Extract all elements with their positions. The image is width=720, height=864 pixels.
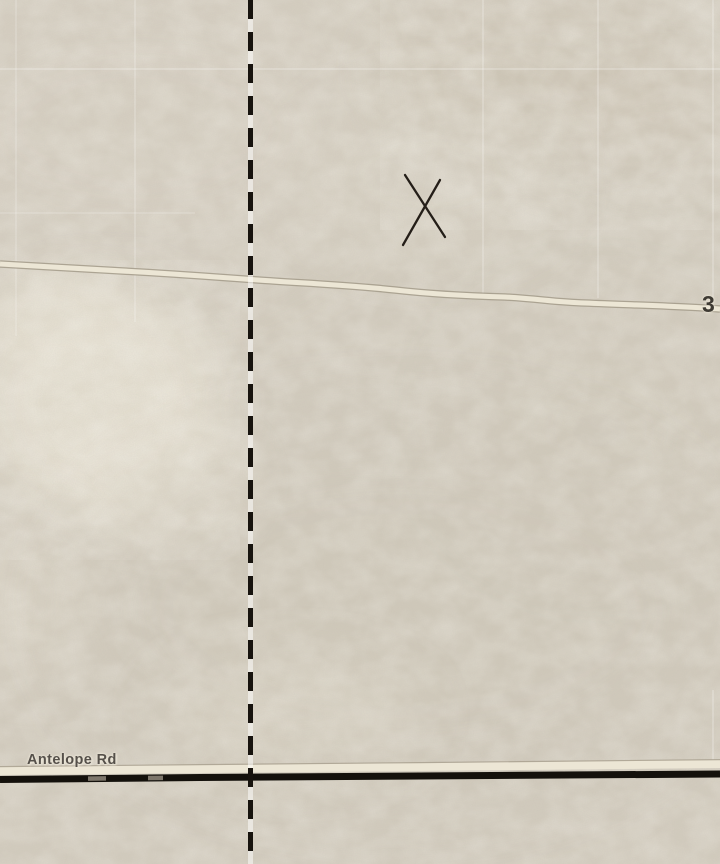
x-mark[interactable] [403,175,445,245]
antelope-road [0,774,720,780]
overlay-layer [0,0,720,864]
route-number-label: 3 [702,291,715,318]
map-canvas[interactable]: Antelope Rd 3 [0,0,720,864]
